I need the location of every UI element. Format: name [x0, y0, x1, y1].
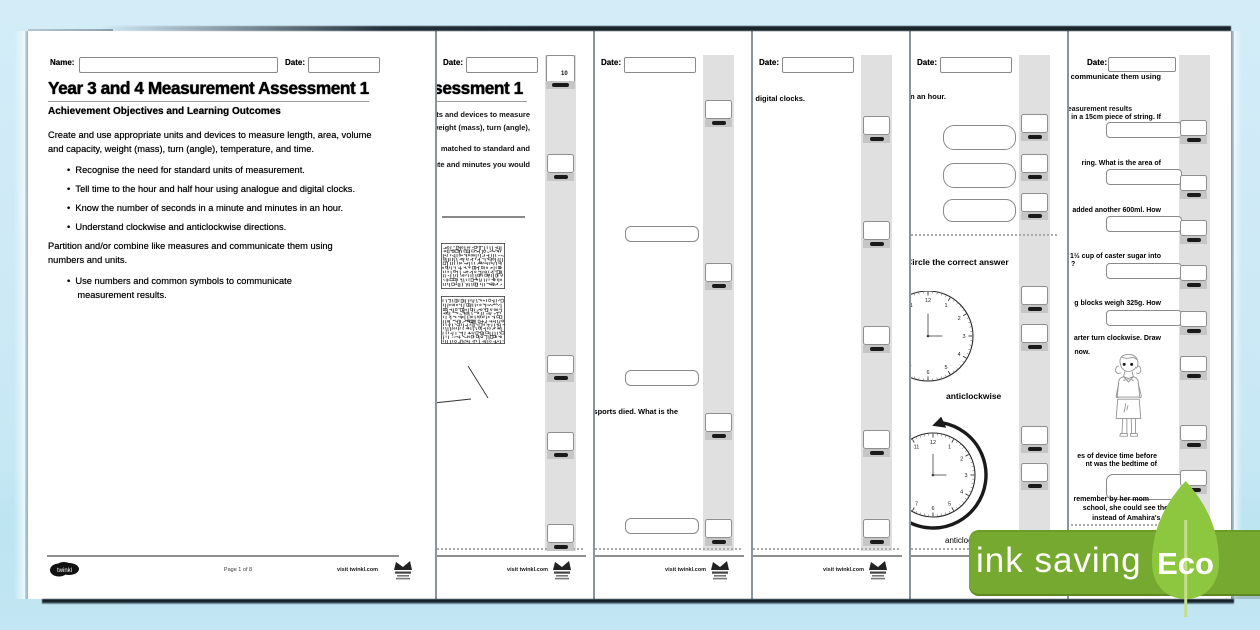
- svg-text:12: 12: [930, 440, 936, 446]
- svg-text:1: 1: [948, 444, 951, 450]
- svg-text:3: 3: [962, 334, 965, 340]
- svg-text:4: 4: [958, 352, 961, 358]
- svg-text:11: 11: [914, 444, 920, 450]
- svg-text:twinkl: twinkl: [57, 568, 72, 574]
- svg-text:3: 3: [964, 473, 967, 479]
- svg-text:6: 6: [926, 370, 929, 376]
- svg-text:7: 7: [915, 502, 918, 508]
- svg-text:4: 4: [960, 490, 963, 496]
- svg-text:12: 12: [925, 298, 931, 304]
- svg-text:1: 1: [944, 303, 947, 309]
- svg-text:5: 5: [944, 365, 947, 371]
- svg-text:6: 6: [931, 506, 934, 512]
- svg-text:2: 2: [960, 457, 963, 463]
- svg-text:5: 5: [948, 502, 951, 508]
- svg-text:2: 2: [958, 316, 961, 322]
